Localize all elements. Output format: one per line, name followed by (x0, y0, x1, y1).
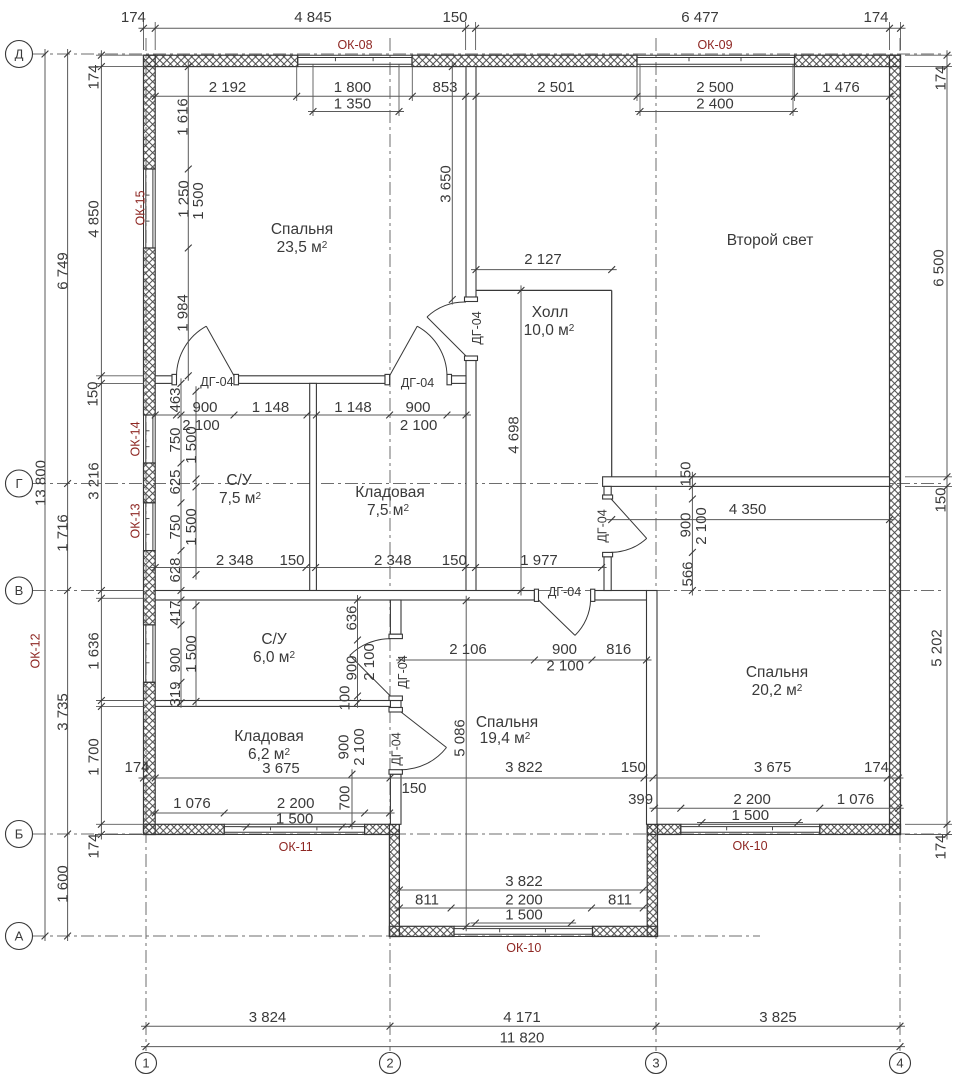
svg-text:811: 811 (415, 892, 439, 909)
svg-text:4 845: 4 845 (294, 9, 332, 26)
svg-text:ОК-10: ОК-10 (732, 839, 767, 853)
svg-text:ОК-09: ОК-09 (697, 38, 732, 52)
svg-text:13 800: 13 800 (32, 460, 49, 506)
svg-text:816: 816 (606, 641, 631, 658)
svg-text:1 636: 1 636 (85, 632, 102, 670)
svg-text:2 200: 2 200 (277, 795, 315, 812)
svg-text:ДГ-04: ДГ-04 (200, 375, 233, 389)
svg-text:1 500: 1 500 (276, 811, 314, 828)
svg-text:ОК-15: ОК-15 (134, 190, 148, 225)
svg-text:6 477: 6 477 (681, 9, 719, 26)
svg-text:2 106: 2 106 (449, 641, 487, 658)
svg-text:1 076: 1 076 (837, 791, 875, 808)
svg-text:1 500: 1 500 (190, 182, 207, 220)
svg-text:Холл: Холл (532, 304, 569, 321)
svg-text:Кладовая: Кладовая (234, 728, 303, 745)
svg-text:150: 150 (932, 487, 949, 512)
svg-text:2 100: 2 100 (351, 728, 368, 766)
svg-text:1 500: 1 500 (183, 635, 200, 673)
svg-text:1 500: 1 500 (505, 907, 543, 924)
svg-text:900: 900 (677, 512, 694, 537)
svg-text:ДГ-04: ДГ-04 (390, 732, 404, 765)
svg-text:174: 174 (932, 834, 949, 859)
svg-text:750: 750 (167, 514, 184, 539)
svg-text:417: 417 (167, 600, 184, 625)
svg-text:2 500: 2 500 (696, 79, 734, 96)
svg-text:150: 150 (621, 759, 646, 776)
svg-text:2 100: 2 100 (182, 417, 220, 434)
svg-text:150: 150 (279, 552, 304, 569)
svg-text:150: 150 (84, 381, 101, 406)
svg-text:3 825: 3 825 (759, 1009, 797, 1026)
svg-text:566: 566 (679, 561, 696, 586)
svg-text:Б: Б (15, 827, 24, 842)
svg-text:2 348: 2 348 (374, 552, 412, 569)
svg-text:399: 399 (628, 791, 653, 808)
svg-text:3 216: 3 216 (85, 462, 102, 500)
svg-text:ОК-08: ОК-08 (337, 38, 372, 52)
svg-text:1 476: 1 476 (822, 79, 860, 96)
svg-text:11 820: 11 820 (500, 1030, 545, 1047)
svg-text:2 100: 2 100 (400, 417, 438, 434)
svg-text:4 698: 4 698 (505, 416, 522, 454)
svg-text:Второй свет: Второй свет (727, 232, 814, 249)
svg-text:3 735: 3 735 (54, 693, 71, 731)
svg-text:900: 900 (192, 399, 217, 416)
svg-text:625: 625 (167, 469, 184, 494)
svg-text:100: 100 (336, 685, 353, 710)
svg-text:ОК-11: ОК-11 (279, 840, 313, 854)
svg-text:4 850: 4 850 (85, 200, 102, 238)
svg-text:4 171: 4 171 (503, 1009, 541, 1026)
svg-text:150: 150 (401, 780, 426, 797)
svg-text:2 501: 2 501 (537, 79, 575, 96)
svg-text:1 600: 1 600 (54, 865, 71, 903)
svg-text:3 824: 3 824 (249, 1009, 287, 1026)
svg-text:2 100: 2 100 (546, 658, 584, 675)
svg-text:174: 174 (121, 9, 146, 26)
svg-text:2 127: 2 127 (524, 251, 562, 268)
svg-text:174: 174 (85, 64, 102, 89)
svg-text:10,0 м2: 10,0 м2 (524, 322, 575, 339)
svg-text:3 822: 3 822 (505, 759, 543, 776)
svg-text:1 716: 1 716 (54, 514, 71, 552)
svg-text:3 675: 3 675 (754, 759, 792, 776)
svg-text:900: 900 (552, 641, 577, 658)
svg-text:2 192: 2 192 (209, 79, 247, 96)
svg-text:ОК-13: ОК-13 (129, 503, 143, 538)
svg-text:463: 463 (167, 387, 184, 412)
svg-text:1 500: 1 500 (732, 807, 770, 824)
svg-text:7,5 м2: 7,5 м2 (219, 490, 262, 507)
svg-text:5 202: 5 202 (928, 629, 945, 667)
svg-text:900: 900 (167, 647, 184, 672)
svg-text:628: 628 (167, 557, 184, 582)
svg-text:19,4 м2: 19,4 м2 (480, 730, 531, 747)
svg-text:2: 2 (386, 1056, 393, 1071)
svg-text:700: 700 (336, 785, 353, 810)
svg-text:ОК-10: ОК-10 (506, 941, 541, 955)
svg-text:Кладовая: Кладовая (355, 484, 424, 501)
svg-text:2 100: 2 100 (693, 507, 710, 545)
svg-text:3: 3 (652, 1056, 659, 1071)
svg-text:С/У: С/У (261, 631, 287, 648)
svg-text:2 200: 2 200 (733, 791, 771, 808)
svg-text:1 076: 1 076 (173, 795, 211, 812)
svg-text:150: 150 (677, 461, 694, 486)
svg-text:ОК-12: ОК-12 (29, 633, 43, 668)
svg-text:174: 174 (85, 833, 102, 858)
svg-text:900: 900 (343, 655, 360, 680)
svg-text:ОК-14: ОК-14 (129, 421, 143, 456)
svg-text:1 616: 1 616 (174, 98, 191, 136)
svg-text:1 500: 1 500 (183, 508, 200, 546)
svg-text:Г: Г (15, 476, 22, 491)
svg-text:2 100: 2 100 (361, 643, 378, 681)
svg-text:6,0 м2: 6,0 м2 (253, 649, 296, 666)
svg-text:Д: Д (15, 47, 24, 62)
svg-text:Спальня: Спальня (476, 714, 538, 731)
svg-text:4: 4 (896, 1056, 903, 1071)
svg-text:174: 174 (864, 759, 889, 776)
svg-text:636: 636 (343, 605, 360, 630)
svg-text:1 148: 1 148 (334, 399, 372, 416)
svg-text:900: 900 (405, 399, 430, 416)
svg-text:ДГ-04: ДГ-04 (548, 585, 581, 599)
svg-text:174: 174 (932, 65, 949, 90)
svg-text:1 350: 1 350 (334, 96, 372, 113)
svg-text:853: 853 (432, 79, 457, 96)
svg-text:3 675: 3 675 (262, 760, 300, 777)
svg-text:20,2 м2: 20,2 м2 (752, 682, 803, 699)
svg-text:7,5 м2: 7,5 м2 (367, 502, 410, 519)
svg-text:174: 174 (863, 9, 888, 26)
svg-text:ДГ-04: ДГ-04 (470, 311, 484, 344)
svg-text:Спальня: Спальня (746, 664, 808, 681)
svg-text:1 148: 1 148 (252, 399, 290, 416)
svg-text:2 400: 2 400 (696, 96, 734, 113)
svg-text:1 700: 1 700 (85, 738, 102, 776)
svg-text:150: 150 (442, 552, 467, 569)
svg-text:ДГ-04: ДГ-04 (401, 376, 434, 390)
svg-text:23,5 м2: 23,5 м2 (277, 239, 328, 256)
svg-text:6 500: 6 500 (930, 249, 947, 287)
svg-text:1: 1 (142, 1056, 149, 1071)
svg-text:2 348: 2 348 (216, 552, 254, 569)
svg-text:Спальня: Спальня (271, 221, 333, 238)
svg-text:4 350: 4 350 (729, 501, 767, 518)
svg-text:6 749: 6 749 (54, 252, 71, 290)
svg-text:1 984: 1 984 (174, 294, 191, 332)
svg-text:С/У: С/У (226, 472, 252, 489)
svg-text:3 822: 3 822 (505, 873, 543, 890)
svg-text:ДГ-04: ДГ-04 (596, 509, 610, 542)
svg-text:811: 811 (608, 892, 632, 909)
svg-text:150: 150 (442, 9, 467, 26)
svg-text:1 800: 1 800 (334, 79, 372, 96)
svg-text:3 650: 3 650 (437, 165, 454, 203)
svg-text:5 086: 5 086 (451, 719, 468, 757)
svg-text:А: А (15, 929, 24, 944)
svg-text:В: В (15, 583, 24, 598)
svg-text:174: 174 (124, 759, 149, 776)
svg-text:319: 319 (167, 681, 184, 706)
svg-text:1 977: 1 977 (520, 552, 558, 569)
svg-text:900: 900 (335, 734, 352, 759)
